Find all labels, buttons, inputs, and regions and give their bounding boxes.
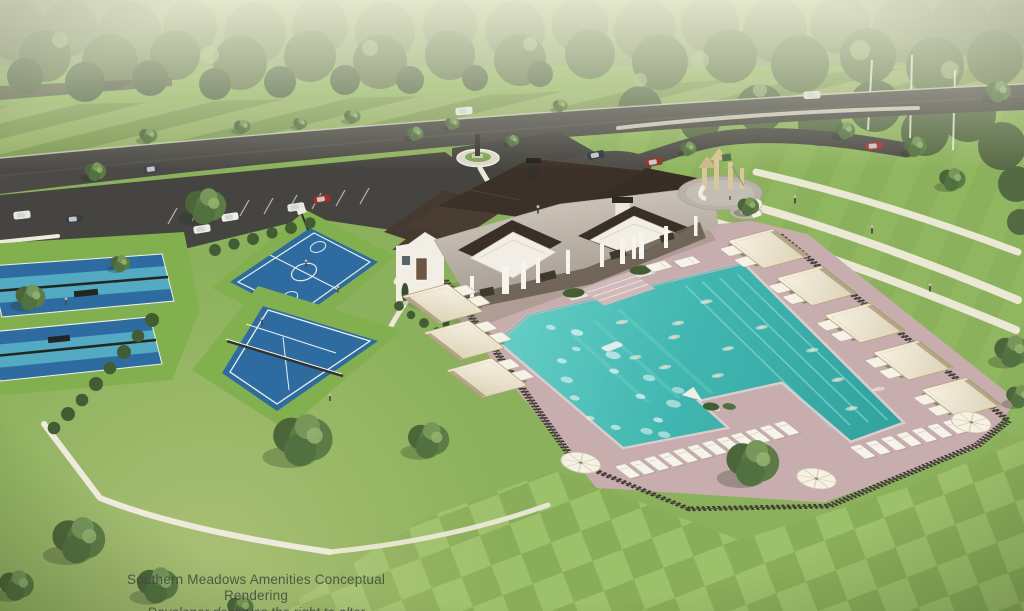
atmosphere xyxy=(0,0,1024,611)
rendering-image: Southern Meadows Amenities Conceptual Re… xyxy=(0,0,1024,611)
scene-svg xyxy=(0,0,1024,611)
